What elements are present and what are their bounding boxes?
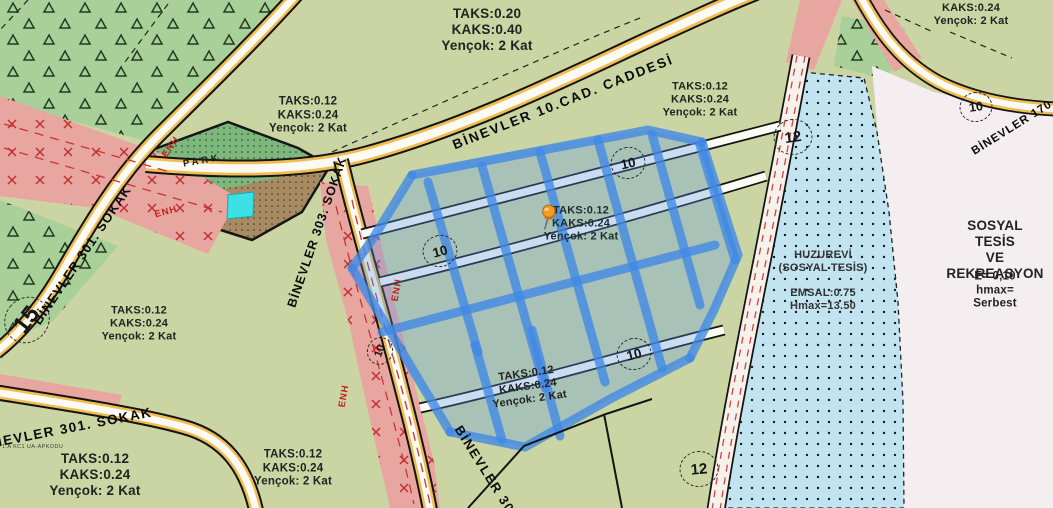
base-map-art — [0, 0, 1053, 508]
zone-label-taks012-c: TAKS:0.12 KAKS:0.24 Yençok: 2 Kat — [102, 305, 177, 344]
sosyal-tesis-values: E= 0,10 hmax= Serbest — [966, 271, 1024, 312]
zone-label-taks020: TAKS:0.20 KAKS:0.40 Yençok: 2 Kat — [441, 6, 532, 54]
zone-label-taks012-a: TAKS:0.12 KAKS:0.24 Yençok: 2 Kat — [269, 96, 347, 137]
small-note-text: 1.A KC1 UA-APKODU — [2, 444, 63, 450]
huzurevi-values: EMSAL:0.75 Hmax=13.50 — [790, 287, 856, 313]
cyan-parcel-marker[interactable] — [227, 191, 255, 219]
zone-label-taks012-d: TAKS:0.12 KAKS:0.24 Yençok: 2 Kat — [49, 451, 140, 499]
zone-label-kaks024-corner: KAKS:0.24 Yençok: 2 Kat — [934, 2, 1009, 28]
huzurevi-label: HUZUREVİ (SOSYAL TESİS) — [779, 249, 868, 275]
zone-label-taks012-e: TAKS:0.12 KAKS:0.24 Yençok: 2 Kat — [254, 449, 332, 490]
zoning-map-canvas[interactable]: TAKS:0.20 KAKS:0.40 Yençok: 2 Kat TAKS:0… — [0, 0, 1053, 508]
zone-label-taks012-b: TAKS:0.12 KAKS:0.24 Yençok: 2 Kat — [663, 81, 738, 120]
